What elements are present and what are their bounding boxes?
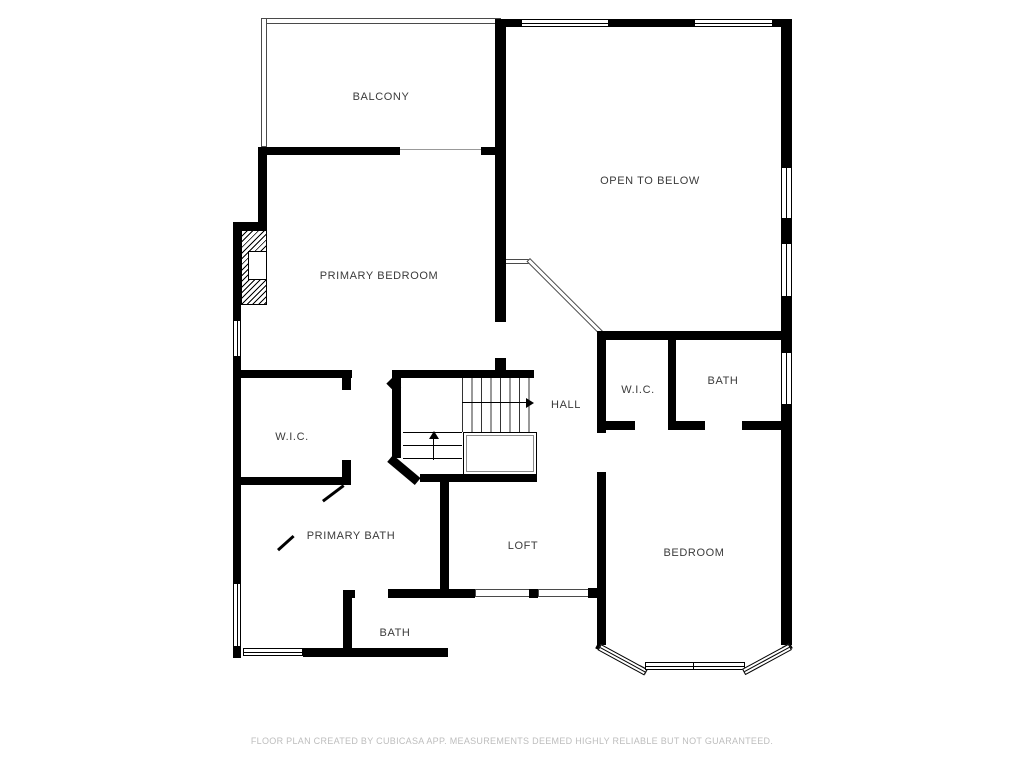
room-label-bath-lower: BATH — [380, 627, 411, 639]
wall — [506, 19, 521, 27]
wall — [258, 147, 400, 155]
wall — [342, 460, 351, 478]
window-mullion — [693, 663, 694, 669]
wall — [392, 370, 534, 378]
wall — [598, 331, 782, 340]
wall — [781, 219, 792, 243]
room-label-primary-bedroom: PRIMARY BEDROOM — [320, 270, 439, 282]
stair-direction-line — [433, 438, 434, 460]
stair-landing-inner — [466, 435, 534, 472]
wall — [597, 331, 606, 433]
wall — [781, 19, 792, 167]
window — [694, 19, 773, 27]
room-label-wic-left: W.I.C. — [275, 431, 309, 443]
wall — [529, 589, 538, 598]
door-swing — [322, 484, 345, 502]
wall — [233, 647, 241, 658]
door-swing — [277, 535, 295, 551]
room-label-hall: HALL — [551, 399, 581, 411]
room-label-bath-upper: BATH — [708, 375, 739, 387]
railing — [526, 258, 602, 334]
wall — [342, 378, 351, 390]
wall — [781, 405, 792, 645]
window — [243, 648, 303, 656]
stair-up-arrow-icon — [429, 431, 439, 439]
wall — [668, 339, 676, 430]
wall — [440, 482, 449, 598]
room-label-wic-right: W.I.C. — [621, 384, 655, 396]
wall — [742, 421, 792, 430]
window — [521, 19, 609, 27]
wall — [781, 297, 792, 352]
stair-direction-arrow-icon — [526, 398, 534, 408]
window — [233, 583, 241, 647]
window — [233, 320, 241, 357]
window — [742, 644, 792, 675]
window — [781, 352, 792, 405]
wall — [495, 19, 506, 322]
window — [645, 662, 745, 670]
wall — [233, 222, 267, 230]
wall — [588, 588, 598, 598]
room-label-balcony: BALCONY — [353, 91, 410, 103]
window — [598, 644, 648, 675]
wall — [233, 477, 351, 485]
wall — [668, 421, 705, 430]
wall — [387, 455, 420, 485]
railing — [475, 589, 530, 597]
wall — [481, 147, 495, 155]
wall — [609, 19, 694, 27]
railing — [261, 18, 501, 24]
wall — [598, 421, 635, 430]
wall — [233, 230, 241, 320]
sliding-door — [400, 149, 481, 152]
wall — [258, 147, 267, 222]
wall — [233, 357, 241, 583]
footer-disclaimer: FLOOR PLAN CREATED BY CUBICASA APP. MEAS… — [251, 736, 773, 746]
stair-landing — [463, 432, 537, 475]
floor-plan: BALCONY OPEN TO BELOW PRIMARY BEDROOM W.… — [0, 0, 1024, 768]
window — [781, 243, 792, 297]
room-label-bedroom: BEDROOM — [663, 547, 724, 559]
railing — [261, 18, 267, 147]
window — [781, 167, 792, 219]
wall — [233, 370, 352, 378]
room-label-loft: LOFT — [508, 540, 539, 552]
stair-tread-lines — [462, 378, 534, 432]
wall — [597, 472, 606, 645]
room-label-open-to-below: OPEN TO BELOW — [600, 175, 700, 187]
railing — [538, 589, 590, 597]
wall — [420, 474, 537, 482]
wall — [343, 590, 352, 657]
stair-direction-line — [462, 402, 526, 403]
fireplace-firebox — [248, 251, 267, 280]
room-label-primary-bath: PRIMARY BATH — [307, 530, 396, 542]
wall — [303, 648, 448, 657]
wall — [388, 589, 475, 598]
